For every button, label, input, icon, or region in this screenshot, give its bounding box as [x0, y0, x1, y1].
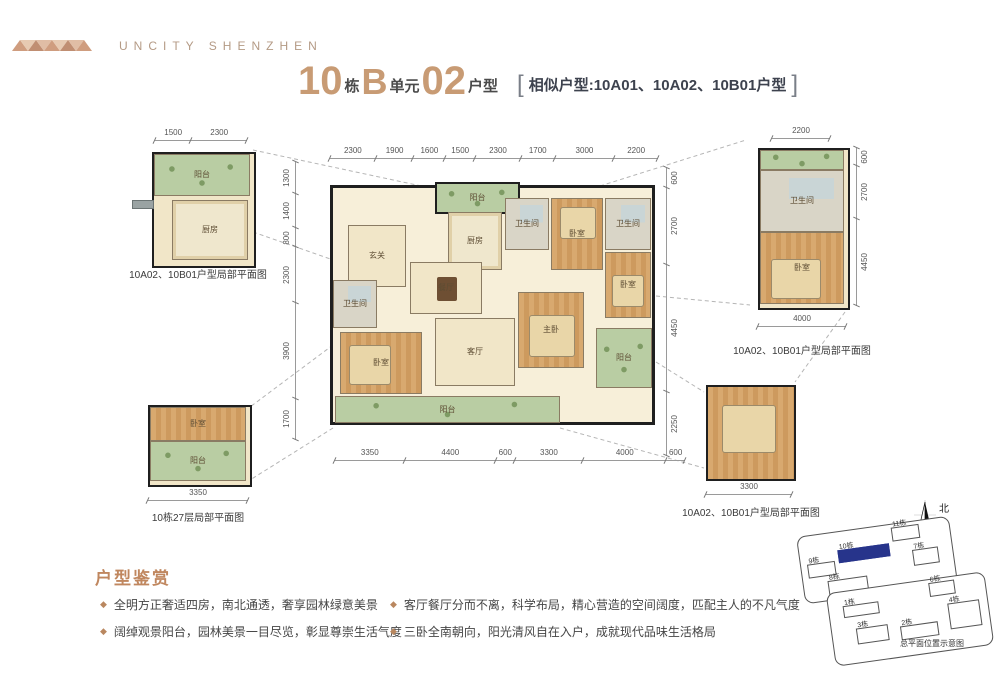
dim: 2300 [191, 128, 247, 141]
bed [722, 405, 776, 453]
diamond-pattern-logo-icon [12, 38, 97, 53]
inset-tr-dims-bottom: 4000 [758, 314, 846, 327]
diamond-bullet-icon [100, 599, 107, 610]
bullet-text: 全明方正奢适四房，南北通透，奢享园林绿意美景 [114, 596, 378, 613]
north-label: 北 [939, 500, 949, 515]
brand-header: UNCITY SHENZHEN [12, 38, 323, 53]
dim: 4400 [405, 448, 496, 461]
dim: 1600 [413, 146, 445, 159]
brand-name: UNCITY SHENZHEN [119, 39, 323, 53]
appreciation-heading: 户型鉴赏 [95, 564, 171, 589]
similar-types-text: 相似户型:10A01、10A02、10B01户型 [529, 74, 787, 95]
dim: 3300 [515, 448, 584, 461]
diamond-bullet-icon [100, 626, 107, 637]
dim: 1900 [376, 146, 414, 159]
building-10-highlighted: 10栋 [837, 543, 890, 563]
dim: 3350 [148, 488, 248, 501]
dim: 2300 [330, 146, 376, 159]
diamond-bullet-icon [390, 599, 397, 610]
inset-tl-dims-top: 1500 2300 [155, 128, 247, 141]
dim: 1500 [155, 128, 191, 141]
dim: 3300 [706, 482, 792, 495]
dim: 1500 [445, 146, 475, 159]
entry-hall: 玄关 [348, 225, 406, 287]
site-map: 北 9栋 10栋 11栋 7栋 8栋 6栋 1栋 3栋 2栋 4栋 总平面位置示… [792, 498, 1000, 668]
inset-bl-dims-bottom: 3350 [148, 488, 248, 501]
building-7: 7栋 [912, 546, 940, 565]
inset-bl-caption: 10栋27层局部平面图 [118, 509, 278, 524]
inset-tr-caption: 10A02、10B01户型局部平面图 [722, 342, 882, 357]
main-plan-dims-right: 600 2700 4450 2250 [662, 168, 676, 456]
bedroom-southwest: 卧室 [340, 332, 422, 394]
diamond-bullet-icon [390, 626, 397, 637]
inset-tr-bathroom: 卫生间 [760, 170, 844, 232]
bullet-text: 阔绰观景阳台，园林美景一目尽览，彰显尊崇生活气度 [114, 623, 402, 640]
inset-tr-plan: 卫生间 卧室 [758, 148, 850, 310]
bracket-close: ] [791, 75, 798, 94]
inset-tl-balcony: 阳台 [154, 154, 250, 196]
building-11: 11栋 [891, 524, 921, 542]
bedroom-east: 卧室 [605, 252, 651, 318]
inset-tl-plan: 阳台 厨房 [152, 152, 256, 268]
dim: 2200 [772, 126, 830, 139]
living-room: 客厅 [435, 318, 515, 386]
site-map-caption: 总平面位置示意图 [900, 638, 964, 649]
inset-bl-bedroom: 卧室 [150, 407, 246, 441]
building-4: 4栋 [947, 599, 982, 629]
appreciation-bullet: 客厅餐厅分而不离，科学布局，精心营造的空间阔度，匹配主人的不凡气度 [390, 596, 800, 613]
main-plan-dims-bottom: 3350 4400 600 3300 4000 600 [335, 448, 685, 461]
inset-tr-bedroom: 卧室 [760, 232, 844, 304]
page-title: 10 栋 B 单元 02 户型 [ 相似户型:10A01、10A02、10B01… [298, 64, 803, 98]
dining-room: 餐厅 [410, 262, 482, 314]
main-plan-dims-left: 1300 1400 800 2300 3900 1700 [284, 162, 298, 440]
inset-br-dims-bottom: 3300 [706, 482, 792, 495]
balcony-east: 阳台 [596, 328, 652, 388]
bed [529, 315, 575, 357]
appreciation-bullet: 三卧全南朝向，阳光清风自在入户，成就现代品味生活格局 [390, 623, 716, 640]
title-type-suffix: 户型 [468, 75, 498, 96]
appreciation-bullet: 阔绰观景阳台，园林美景一目尽览，彰显尊崇生活气度 [100, 623, 402, 640]
bathroom-middle: 卫生间 [505, 198, 549, 250]
inset-tr-dims-right: 600 2700 4450 [852, 148, 866, 306]
master-bedroom: 主卧 [518, 292, 584, 368]
wall-stub [132, 200, 154, 209]
inset-bl-plan: 卧室 阳台 [148, 405, 252, 487]
inset-tr-planter [760, 150, 844, 170]
inset-br-plan [706, 385, 796, 481]
dim: 3000 [555, 146, 615, 159]
dim: 4000 [583, 448, 666, 461]
inset-tr-dims-top: 2200 [772, 126, 830, 139]
bracket-open: [ [517, 75, 524, 94]
bathroom-east: 卫生间 [605, 198, 651, 250]
dim: 2300 [475, 146, 521, 159]
building-1: 1栋 [843, 601, 880, 618]
dim: 1700 [521, 146, 555, 159]
appreciation-bullet: 全明方正奢适四房，南北通透，奢享园林绿意美景 [100, 596, 378, 613]
balcony-south: 阳台 [335, 396, 560, 423]
similar-types-note: [ 相似户型:10A01、10A02、10B01户型 ] [512, 74, 803, 95]
bedroom-middle: 卧室 [551, 198, 603, 270]
bullet-text: 三卧全南朝向，阳光清风自在入户，成就现代品味生活格局 [404, 623, 716, 640]
bathroom-west: 卫生间 [333, 280, 377, 328]
inset-bl-balcony: 阳台 [150, 441, 246, 481]
dim: 3350 [335, 448, 405, 461]
title-block-suffix: 栋 [345, 75, 360, 96]
title-unit-letter: B [362, 67, 388, 98]
title-unit-suffix: 单元 [390, 75, 420, 96]
dim: 4000 [758, 314, 846, 327]
dim: 2200 [614, 146, 658, 159]
title-type-number: 02 [422, 64, 467, 98]
title-block-number: 10 [298, 64, 343, 98]
inset-tl-caption: 10A02、10B01户型局部平面图 [118, 266, 278, 281]
dim: 600 [496, 448, 515, 461]
main-plan-dims-top: 2300 1900 1600 1500 2300 1700 3000 2200 [330, 146, 658, 159]
building-3: 3栋 [856, 624, 890, 644]
inset-tl-kitchen: 厨房 [172, 200, 248, 260]
bullet-text: 客厅餐厅分而不离，科学布局，精心营造的空间阔度，匹配主人的不凡气度 [404, 596, 800, 613]
